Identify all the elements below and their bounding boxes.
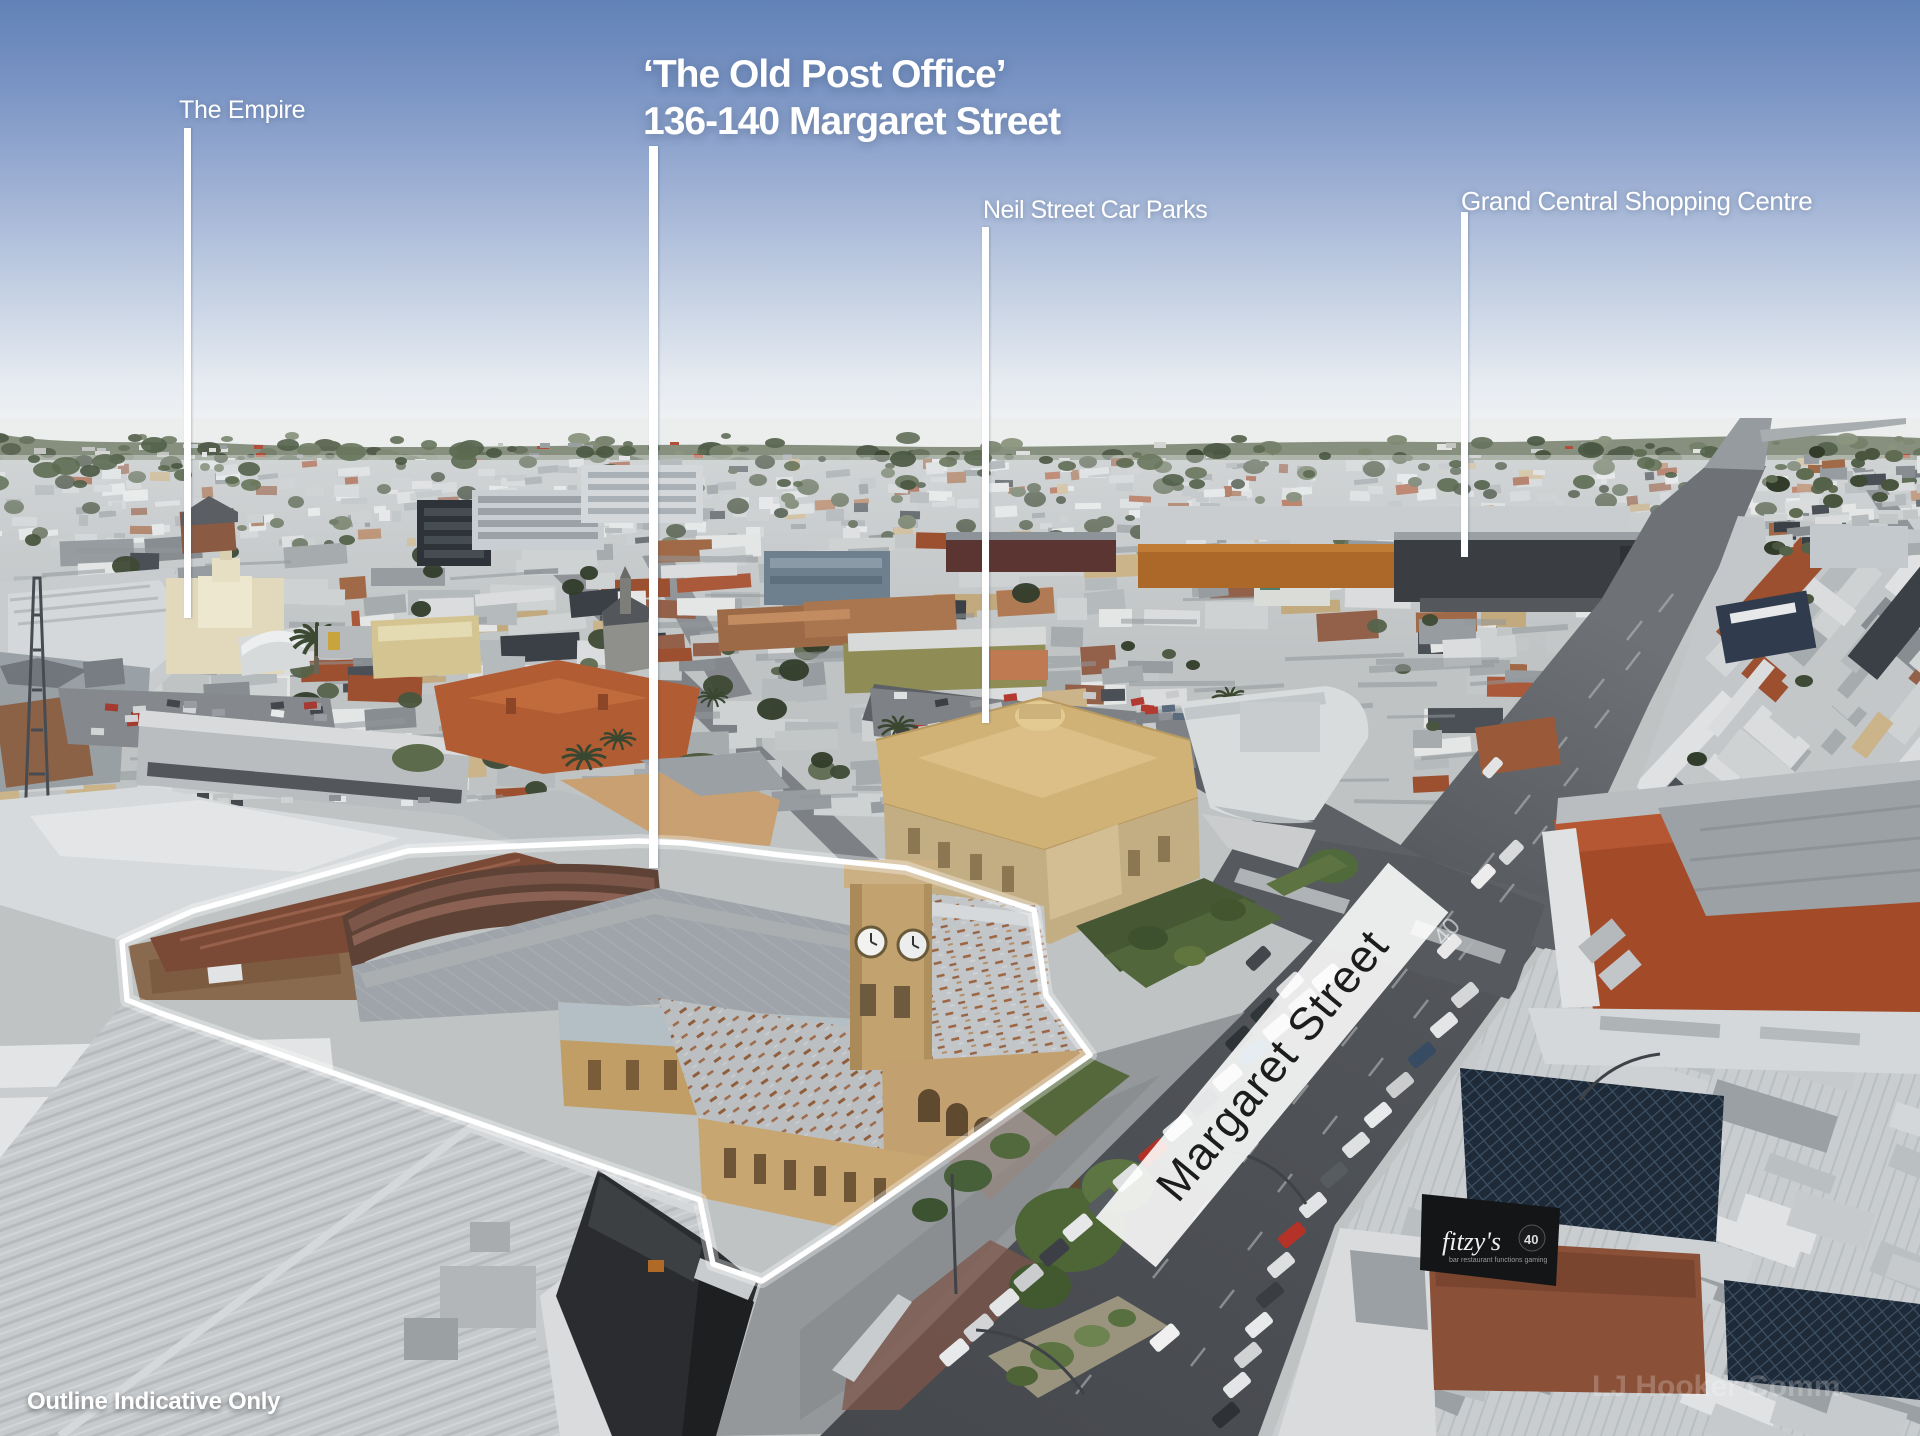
svg-text:40: 40 bbox=[1524, 1232, 1538, 1247]
svg-text:fitzy's: fitzy's bbox=[1442, 1227, 1501, 1256]
svg-text:bar restaurant functions gamin: bar restaurant functions gaming bbox=[1449, 1257, 1548, 1264]
